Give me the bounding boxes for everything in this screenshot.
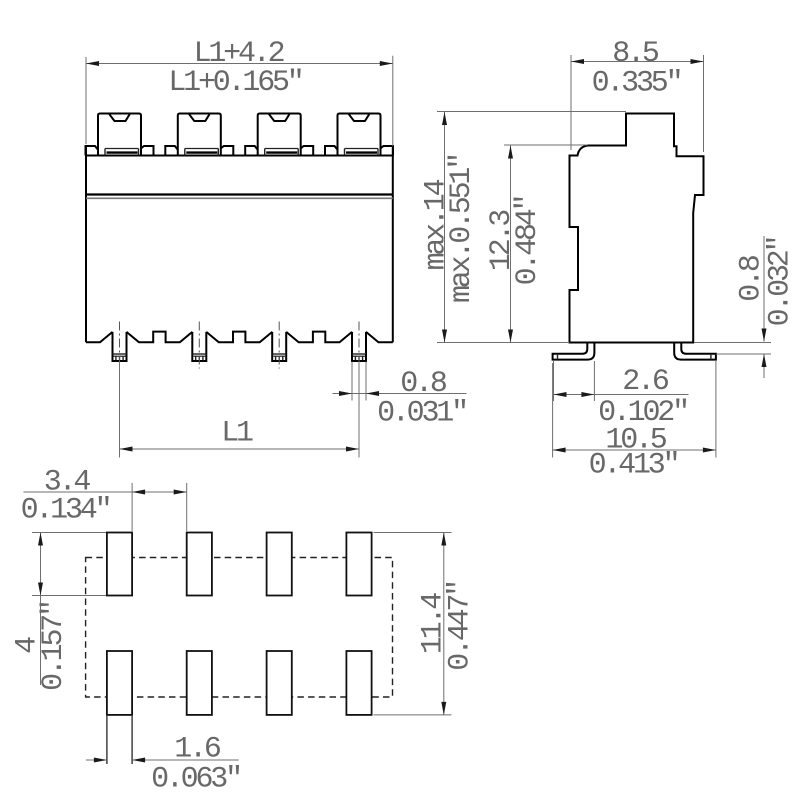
- svg-text:0.484": 0.484": [511, 197, 545, 286]
- svg-text:1.6: 1.6: [174, 733, 221, 767]
- svg-text:0.447": 0.447": [444, 582, 478, 671]
- svg-text:max.0.551": max.0.551": [445, 155, 479, 303]
- svg-text:L1: L1: [221, 417, 253, 451]
- svg-text:0.032": 0.032": [764, 238, 798, 327]
- svg-text:0.134": 0.134": [21, 494, 110, 528]
- svg-text:L1+0.165": L1+0.165": [168, 66, 301, 100]
- svg-text:0.063": 0.063": [151, 763, 240, 797]
- svg-text:0.335": 0.335": [592, 67, 681, 101]
- svg-text:0.413": 0.413": [589, 449, 678, 483]
- svg-text:0.031": 0.031": [377, 397, 466, 431]
- svg-text:2.6: 2.6: [622, 365, 669, 399]
- svg-text:0.157": 0.157": [37, 602, 71, 691]
